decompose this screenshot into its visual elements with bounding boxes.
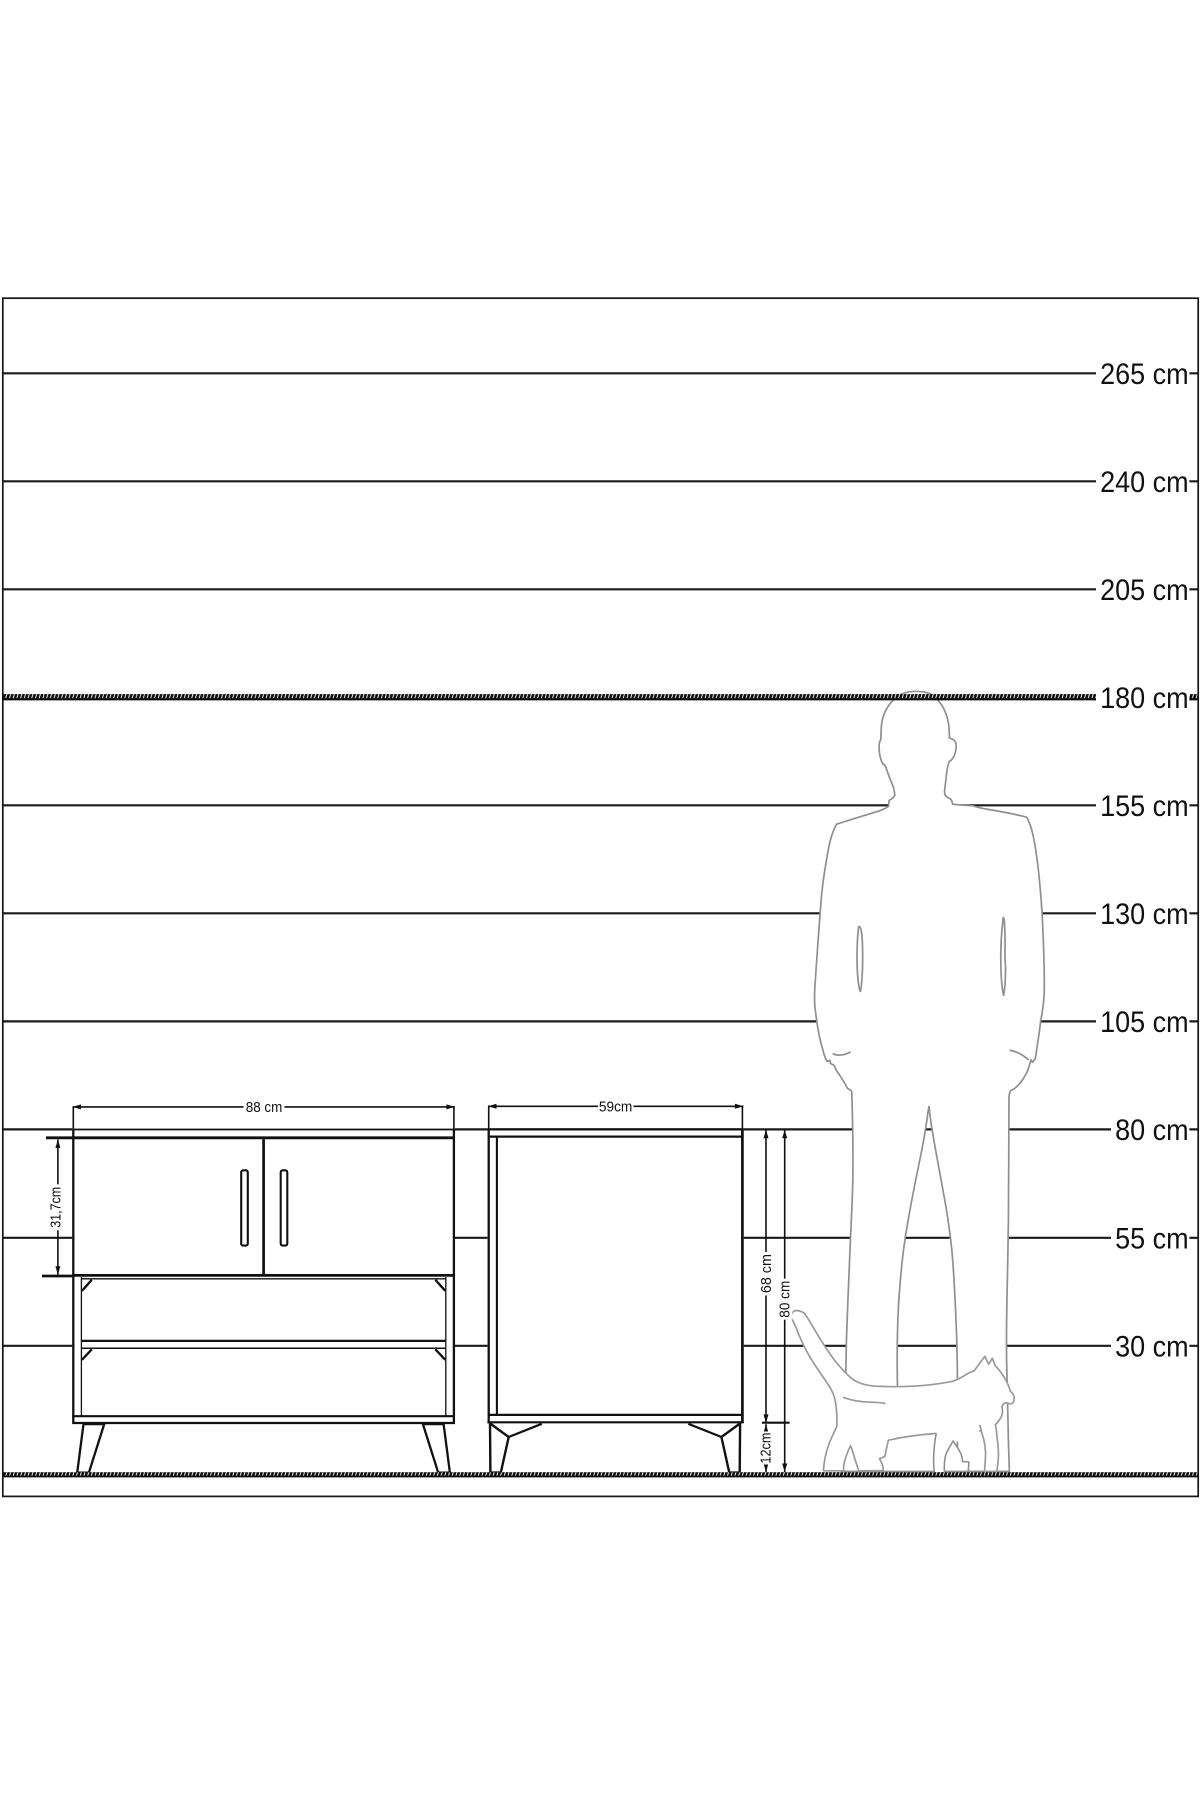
svg-text:80 cm: 80 cm [778, 1281, 794, 1318]
svg-text:55 cm: 55 cm [1115, 1223, 1189, 1255]
svg-text:68 cm: 68 cm [759, 1254, 775, 1293]
svg-text:240 cm: 240 cm [1100, 467, 1189, 499]
svg-text:155 cm: 155 cm [1100, 791, 1189, 823]
svg-text:265 cm: 265 cm [1100, 359, 1189, 391]
svg-text:12cm: 12cm [759, 1433, 775, 1464]
svg-text:180 cm: 180 cm [1100, 683, 1189, 715]
svg-text:31,7cm: 31,7cm [48, 1187, 64, 1228]
svg-text:80 cm: 80 cm [1115, 1115, 1189, 1147]
svg-text:130 cm: 130 cm [1100, 899, 1189, 931]
svg-text:88 cm: 88 cm [246, 1100, 283, 1116]
svg-text:205 cm: 205 cm [1100, 575, 1189, 607]
svg-text:59cm: 59cm [599, 1100, 633, 1116]
svg-text:105 cm: 105 cm [1100, 1007, 1189, 1039]
svg-text:30 cm: 30 cm [1115, 1331, 1189, 1363]
